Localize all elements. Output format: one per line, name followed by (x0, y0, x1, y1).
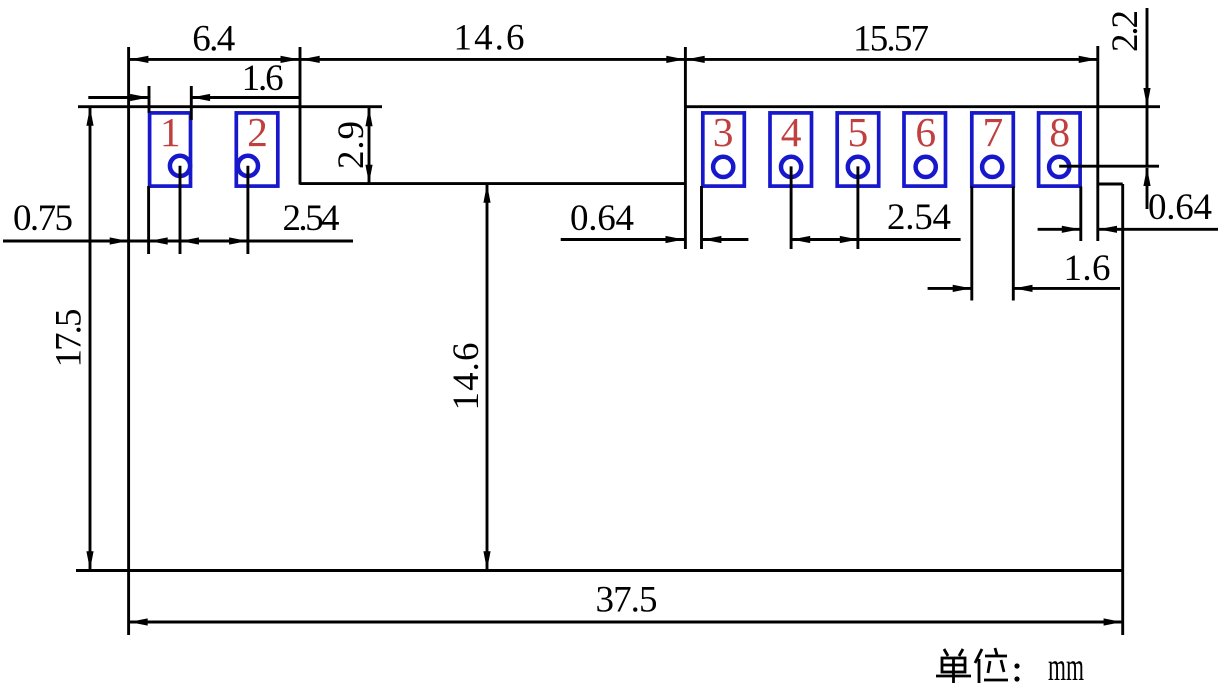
svg-text:17.5: 17.5 (49, 309, 90, 368)
svg-text:37.5: 37.5 (596, 579, 658, 620)
svg-text:15.57: 15.57 (853, 19, 929, 60)
svg-text:6.4: 6.4 (192, 19, 235, 60)
svg-text:1: 1 (160, 109, 181, 155)
svg-text:3: 3 (713, 109, 734, 155)
svg-text:1.6: 1.6 (242, 58, 284, 99)
svg-text:6: 6 (915, 109, 936, 155)
svg-text:0.75: 0.75 (13, 198, 73, 239)
svg-text:14.6: 14.6 (446, 343, 487, 411)
svg-text:0.64: 0.64 (570, 198, 634, 239)
svg-text:7: 7 (983, 109, 1004, 155)
svg-text:4: 4 (781, 109, 802, 155)
svg-text:14.6: 14.6 (454, 18, 525, 59)
svg-text:mm: mm (1048, 644, 1084, 689)
svg-text:0.64: 0.64 (1148, 187, 1212, 228)
svg-text:8: 8 (1049, 109, 1070, 155)
svg-text:2.54: 2.54 (283, 198, 340, 239)
svg-text:2.54: 2.54 (887, 197, 951, 238)
svg-text:1.6: 1.6 (1064, 248, 1111, 289)
svg-text:2.9: 2.9 (331, 121, 372, 169)
svg-text:2.2: 2.2 (1105, 10, 1146, 52)
svg-text:2: 2 (247, 109, 268, 155)
svg-text:5: 5 (848, 109, 869, 155)
